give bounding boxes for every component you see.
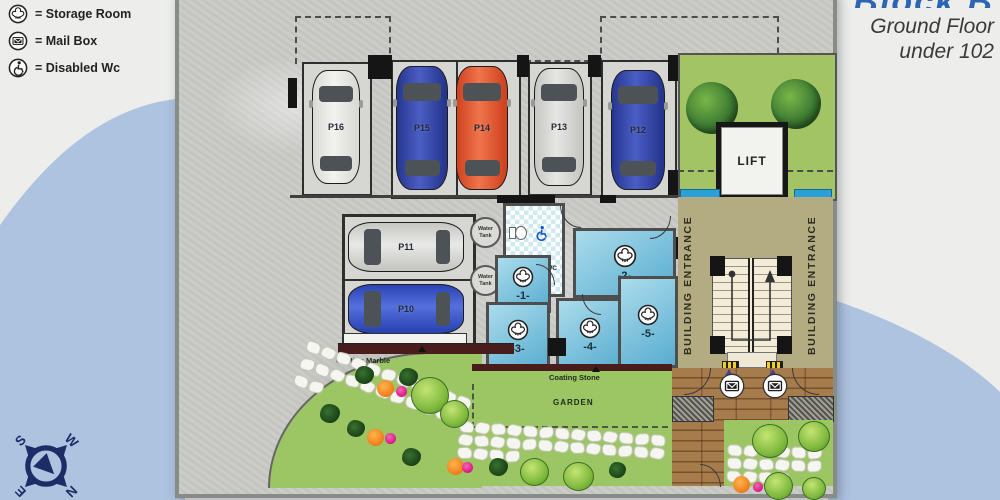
storage-room-icon	[613, 244, 637, 268]
title-line-1: Ground Floor	[853, 14, 994, 39]
stepping-stone	[554, 427, 570, 440]
storage-room-3: -3-	[486, 302, 550, 372]
coating-marble-wall	[338, 343, 514, 354]
stepping-stone	[650, 434, 666, 447]
room-label: -1-	[516, 290, 529, 302]
floorplan-screenshot: P16 P15 P14 P13 P12	[0, 0, 1000, 500]
title-line-2: under 102	[853, 39, 994, 64]
column	[288, 78, 297, 108]
orange-shrub	[377, 380, 394, 397]
parking-label: P15	[414, 123, 430, 133]
bush	[440, 400, 469, 428]
rear-window	[320, 156, 352, 171]
marker-triangle	[418, 346, 426, 352]
wheelchair-icon	[532, 224, 550, 242]
lift-shaft: LIFT	[716, 122, 788, 200]
mailbox-icon	[719, 373, 745, 399]
windshield	[463, 83, 501, 101]
stepping-stone	[727, 444, 742, 457]
stepping-stone	[758, 458, 774, 471]
car-p10: P10	[348, 284, 464, 334]
stepping-stone	[634, 433, 650, 446]
building-entrance-label-right: BUILDING ENTRANCE	[806, 212, 822, 358]
windshield	[403, 83, 441, 101]
rear-window	[542, 157, 576, 172]
room-label: -5-	[641, 328, 654, 340]
storage-room-icon	[8, 4, 28, 24]
car-p12: P12	[611, 70, 665, 190]
stepping-stone	[308, 379, 325, 394]
room-label: -4-	[583, 341, 596, 353]
garden-label: GARDEN	[553, 398, 594, 407]
mailbox-icon	[8, 31, 28, 51]
parking-label: P11	[398, 242, 414, 252]
rear-window	[436, 230, 451, 264]
pink-shrub	[753, 482, 763, 492]
door-mat	[788, 396, 834, 422]
door-mat	[672, 396, 714, 422]
car-p11: P11	[348, 222, 464, 272]
legend-label: = Storage Room	[35, 7, 131, 21]
bush	[764, 472, 793, 500]
stepping-stone	[586, 430, 602, 443]
stepping-stone	[601, 444, 617, 457]
wall	[290, 195, 678, 198]
storage-room-icon	[579, 317, 601, 339]
parking-label: P10	[398, 304, 414, 314]
stepping-stone	[457, 432, 474, 447]
water-tank-label: Water Tank	[472, 226, 499, 238]
stepping-stone	[727, 457, 742, 470]
storage-room-icon	[512, 266, 534, 288]
legend-label: = Mail Box	[35, 34, 97, 48]
stepping-stone	[522, 438, 538, 451]
marker-triangle	[592, 366, 600, 372]
rear-window	[436, 292, 451, 326]
lift-label: LIFT	[737, 154, 766, 168]
stepping-stone	[506, 437, 522, 450]
orange-shrub	[733, 476, 750, 493]
bush	[520, 458, 549, 486]
legend-item-storage: = Storage Room	[8, 4, 131, 24]
legend-label: = Disabled Wc	[35, 61, 120, 75]
stepping-stone	[474, 421, 491, 436]
rear-window	[405, 160, 440, 176]
stepping-stone	[523, 425, 539, 438]
stepping-stone	[491, 423, 507, 436]
stepping-stone	[602, 430, 619, 445]
plan-layer: P16 P15 P14 P13 P12	[0, 0, 1000, 500]
column	[777, 256, 792, 276]
stepping-stone	[489, 435, 506, 450]
windshield	[364, 229, 381, 266]
water-tank: Water Tank	[470, 217, 501, 248]
pink-shrub	[396, 386, 407, 397]
pink-shrub	[462, 462, 473, 473]
stepping-stone	[538, 439, 554, 452]
stepping-stone	[457, 447, 473, 460]
bush	[563, 462, 594, 491]
mailbox-icon	[762, 373, 788, 399]
block-title-partial: Block B	[853, 0, 994, 8]
stepping-stone	[474, 435, 490, 448]
lift-cab: LIFT	[721, 127, 783, 195]
stepping-stone	[506, 423, 523, 438]
legend-item-mailbox: = Mail Box	[8, 31, 131, 51]
stepping-stone	[299, 357, 316, 372]
stepping-stone	[806, 460, 822, 473]
windshield	[364, 291, 381, 328]
stepping-stone	[570, 441, 586, 454]
parking-label: P12	[630, 125, 646, 135]
toilet-icon	[509, 226, 525, 238]
parking-label: P14	[474, 123, 490, 133]
stepping-stone	[618, 432, 634, 445]
car-p14: P14	[456, 66, 508, 190]
pink-shrub	[385, 433, 396, 444]
storage-room-icon	[637, 304, 659, 326]
disabled-wc-icon	[8, 58, 28, 78]
column	[777, 336, 792, 354]
parking-label: P13	[551, 122, 567, 132]
car-p16: P16	[312, 70, 360, 184]
storage-room-5: -5-	[618, 276, 678, 368]
storage-room-icon	[507, 319, 529, 341]
column	[710, 336, 725, 354]
car-p15: P15	[396, 66, 448, 190]
column	[548, 338, 566, 356]
coating-stone-label: Coating Stone	[549, 373, 600, 382]
legend: = Storage Room = Mail Box = Disabled Wc	[8, 4, 131, 78]
stepping-stone	[553, 439, 570, 454]
stepping-stone	[633, 446, 649, 459]
bush	[802, 477, 826, 500]
plan-title: Block B Ground Floor under 102	[853, 0, 994, 64]
wall-segment	[600, 195, 616, 203]
column	[368, 55, 392, 79]
stepping-stone	[570, 427, 587, 442]
building-entrance-label-left: BUILDING ENTRANCE	[682, 212, 698, 358]
column	[588, 55, 601, 77]
stepping-stone	[505, 450, 521, 463]
column	[517, 55, 529, 77]
orange-shrub	[367, 429, 384, 446]
wall-segment	[497, 195, 555, 203]
compass-rose: S W E N	[2, 422, 90, 500]
stepping-stone	[585, 441, 602, 456]
bush	[752, 424, 788, 458]
car-p13: P13	[534, 68, 584, 186]
coating-stone-wall	[472, 364, 672, 371]
stepping-stone	[791, 459, 806, 472]
stepping-stone	[539, 426, 555, 439]
windshield	[541, 84, 578, 101]
windshield	[618, 86, 658, 104]
stepping-stone	[617, 445, 633, 458]
rear-window	[465, 160, 500, 176]
column	[710, 256, 725, 276]
stall-divider	[345, 279, 473, 281]
parking-label: P16	[328, 122, 344, 132]
stepping-stone	[649, 446, 666, 461]
stepping-stone	[774, 458, 791, 473]
stepping-stone	[742, 457, 759, 472]
bush	[798, 421, 830, 452]
windshield	[319, 86, 354, 103]
legend-item-disabled-wc: = Disabled Wc	[8, 58, 131, 78]
rear-window	[620, 161, 656, 176]
